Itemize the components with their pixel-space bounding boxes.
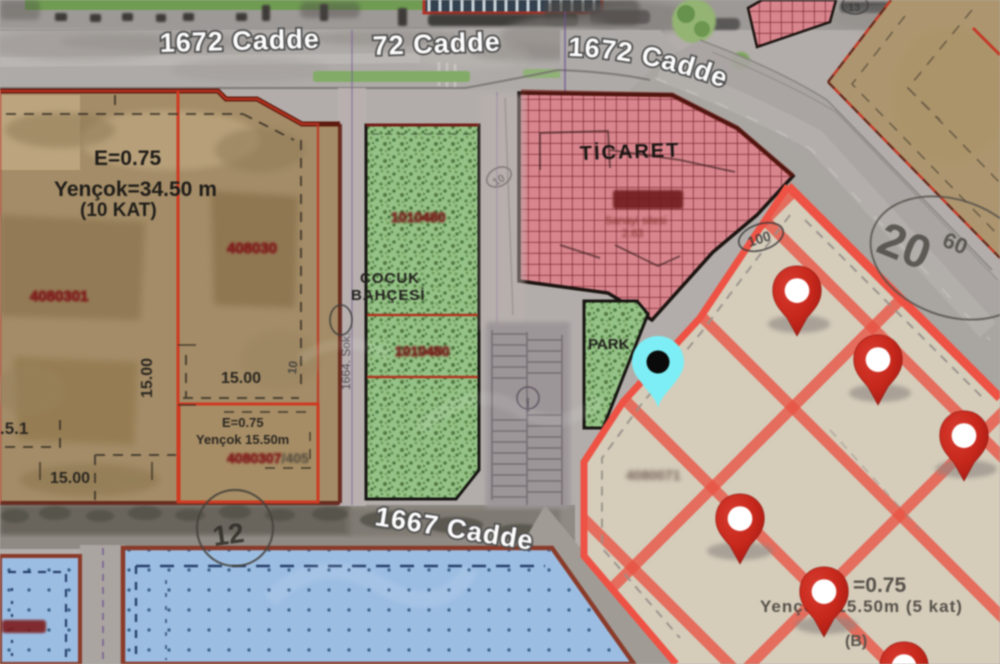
svg-text:15.00: 15.00 [221,370,261,387]
svg-text:12: 12 [211,517,246,552]
svg-text:PARK: PARK [588,336,630,353]
svg-text:15.00: 15.00 [50,470,90,487]
svg-text:1672 Cadde: 1672 Cadde [159,24,320,58]
svg-text:Yençok 15.50m: Yençok 15.50m [196,432,289,447]
svg-text:13: 13 [848,2,860,14]
svg-text:4080307/405: 4080307/405 [227,450,309,466]
svg-text:BAHÇESİ: BAHÇESİ [351,287,426,304]
svg-text:10: 10 [285,360,301,375]
svg-text:.5.1: .5.1 [0,419,28,438]
svg-text:E=0.75: E=0.75 [94,147,161,170]
svg-text:1010480: 1010480 [395,343,450,359]
svg-text:4080301: 4080301 [30,288,88,305]
svg-text:Yençok=34.50 m: Yençok=34.50 m [54,178,217,201]
svg-text:4080071: 4080071 [626,467,681,483]
svg-text:72 Cadde: 72 Cadde [372,27,501,61]
svg-text:15.00: 15.00 [139,358,156,398]
svg-text:E=0.75: E=0.75 [222,415,264,430]
svg-text:(10 KAT): (10 KAT) [80,200,157,221]
svg-text:2.63: 2.63 [622,228,643,240]
svg-text:408030: 408030 [227,240,277,257]
svg-text:1010480: 1010480 [391,209,446,225]
svg-text:TİCARET: TİCARET [579,138,680,164]
svg-text:=0.75: =0.75 [853,574,906,597]
svg-text:(B): (B) [845,633,867,650]
svg-text:ÇOCUK: ÇOCUK [360,270,420,287]
svg-text:Yençok=15.50m (5 kat): Yençok=15.50m (5 kat) [760,597,963,616]
svg-text:Sanayi sitesi: Sanayi sitesi [605,215,667,227]
